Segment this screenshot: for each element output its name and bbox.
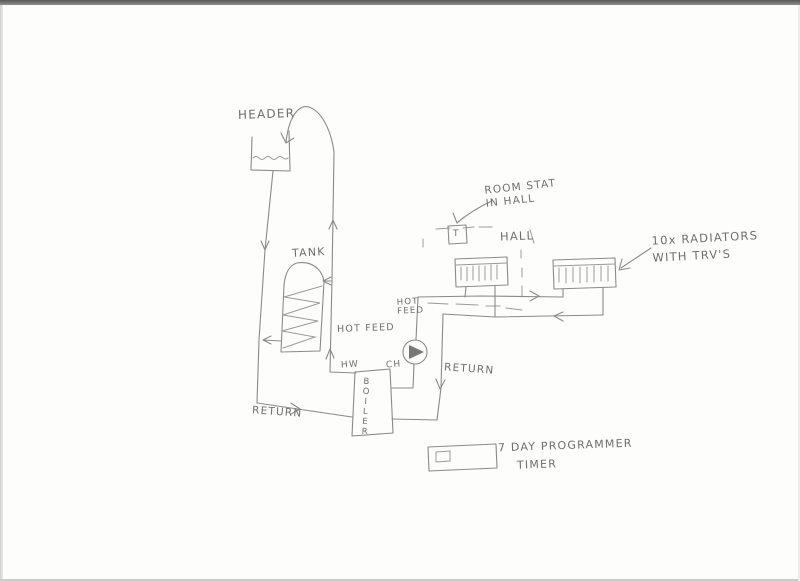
radiator-tails [563,288,603,315]
hot-feed-tank-label: HOT FEED [337,322,395,335]
arrow-right-icon [530,291,539,301]
radiator-fins [559,266,608,283]
timer-label: TIMER [517,457,557,471]
arrow-down-icon [436,379,445,389]
stat-letter-label: T [453,229,459,239]
hw-label: HW [341,359,360,370]
pump-triangle-icon [409,345,424,359]
boiler-box [352,369,393,436]
hot-water-cylinder [281,263,324,352]
flow-pipe [418,291,563,310]
cylinder-coil [282,286,322,348]
water-line [253,157,288,160]
hot-feed-pump-label: HOT FEED [397,297,425,315]
arrow-left-icon [554,312,563,321]
arrow-down-icon [453,213,464,223]
timer-display-icon [436,451,450,462]
diagram-linework [0,0,800,581]
radiator-tails [465,286,495,317]
sketch-dashes [428,303,522,310]
tank-drain-connector [263,336,281,344]
programmer-box [428,444,497,471]
radiators-pointer [619,248,651,270]
radiators-note-label: 10x RADIATORS WITH TRV'S [651,227,759,267]
header-label: HEADER [238,106,296,122]
ch-label: CH [386,359,402,370]
hot-feed-riser-pipe [323,152,356,373]
header-tank [251,131,290,171]
boiler-label: BOILER [360,377,371,437]
radiator-right [553,258,616,315]
return-pipe-radiators [392,312,603,420]
hall-label: HALL [500,228,535,243]
radiator-left [455,257,508,317]
scanned-heating-diagram: HEADER TANK HOT FEED HOT FEED ROOM STAT … [0,0,800,581]
radiator-fins [461,265,497,281]
cold-feed-pipe [257,171,281,403]
tank-label: TANK [292,245,326,260]
